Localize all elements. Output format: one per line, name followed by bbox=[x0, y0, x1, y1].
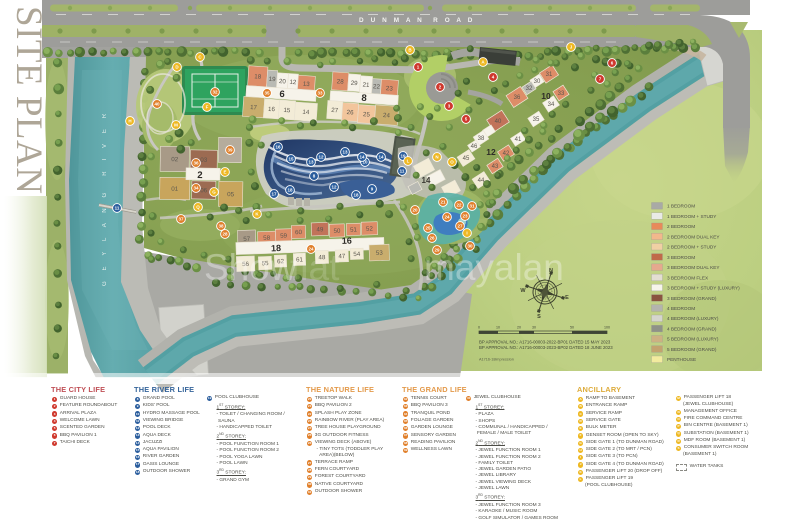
svg-text:5 BEDROOM (GRAND): 5 BEDROOM (GRAND) bbox=[667, 347, 717, 352]
svg-text:2 BEDROOM + STUDY: 2 BEDROOM + STUDY bbox=[667, 245, 717, 250]
svg-text:18: 18 bbox=[353, 193, 359, 198]
svg-text:10: 10 bbox=[496, 326, 500, 330]
svg-text:M: M bbox=[174, 123, 178, 128]
svg-text:32: 32 bbox=[212, 90, 218, 95]
svg-text:12: 12 bbox=[331, 185, 337, 190]
svg-text:3 BEDROOM (GRAND): 3 BEDROOM (GRAND) bbox=[667, 296, 717, 301]
svg-text:32: 32 bbox=[526, 86, 533, 92]
svg-text:mayalan: mayalan bbox=[424, 247, 564, 288]
svg-text:50: 50 bbox=[570, 326, 574, 330]
svg-text:W: W bbox=[520, 288, 526, 294]
svg-text:100: 100 bbox=[604, 326, 610, 330]
svg-text:34: 34 bbox=[548, 102, 555, 108]
svg-text:A1716-18impression: A1716-18impression bbox=[479, 358, 514, 362]
svg-text:BP APPROVAL NO.: A1716-00003-2: BP APPROVAL NO.: A1716-00003-2023-BP02 D… bbox=[479, 345, 613, 350]
svg-text:26: 26 bbox=[346, 109, 354, 117]
svg-text:18: 18 bbox=[254, 73, 262, 81]
svg-text:33: 33 bbox=[558, 91, 565, 97]
svg-text:24: 24 bbox=[444, 215, 450, 220]
svg-text:3 BEDROOM FLEX: 3 BEDROOM FLEX bbox=[667, 275, 709, 280]
svg-text:54: 54 bbox=[353, 251, 361, 258]
svg-text:4 BEDROOM (LUXURY): 4 BEDROOM (LUXURY) bbox=[667, 316, 719, 321]
svg-text:BP APPROVAL NO.: A1716-00003-2: BP APPROVAL NO.: A1716-00003-2022-BP01 D… bbox=[479, 340, 611, 345]
svg-text:17: 17 bbox=[271, 192, 277, 197]
svg-text:49: 49 bbox=[316, 226, 324, 233]
svg-text:27: 27 bbox=[457, 224, 463, 229]
svg-text:0: 0 bbox=[478, 326, 480, 330]
svg-text:22: 22 bbox=[456, 203, 462, 208]
svg-text:01: 01 bbox=[171, 186, 179, 193]
svg-text:21: 21 bbox=[362, 82, 370, 90]
svg-text:45: 45 bbox=[463, 156, 470, 162]
svg-text:4 BEDROOM: 4 BEDROOM bbox=[667, 306, 695, 311]
svg-text:3 BEDROOM: 3 BEDROOM bbox=[667, 255, 695, 260]
svg-text:33: 33 bbox=[317, 91, 323, 96]
svg-text:38: 38 bbox=[478, 136, 485, 142]
svg-text:03: 03 bbox=[200, 157, 208, 164]
svg-text:37: 37 bbox=[178, 217, 184, 222]
svg-text:34: 34 bbox=[193, 186, 199, 191]
svg-text:23: 23 bbox=[462, 214, 468, 219]
svg-text:F: F bbox=[206, 105, 209, 110]
svg-text:G E Y L A N G R I V E R: G E Y L A N G R I V E R bbox=[102, 109, 108, 286]
svg-text:36: 36 bbox=[193, 161, 199, 166]
svg-text:16: 16 bbox=[342, 236, 352, 246]
svg-text:11: 11 bbox=[400, 169, 405, 174]
svg-text:13: 13 bbox=[303, 81, 311, 89]
svg-text:18: 18 bbox=[287, 188, 293, 193]
svg-text:1 BEDROOM: 1 BEDROOM bbox=[667, 204, 695, 209]
svg-text:14: 14 bbox=[302, 109, 310, 117]
svg-text:47: 47 bbox=[338, 253, 346, 260]
svg-text:35: 35 bbox=[533, 117, 540, 123]
svg-text:26: 26 bbox=[429, 236, 435, 241]
svg-text:13: 13 bbox=[308, 160, 314, 165]
svg-text:22: 22 bbox=[373, 83, 381, 91]
svg-text:46: 46 bbox=[471, 144, 478, 150]
svg-text:28: 28 bbox=[222, 232, 228, 237]
svg-text:8: 8 bbox=[361, 93, 367, 104]
svg-text:19: 19 bbox=[268, 76, 276, 84]
svg-text:3 BEDROOM DUAL KEY: 3 BEDROOM DUAL KEY bbox=[667, 265, 720, 270]
svg-text:3 BEDROOM + STUDY (LUXURY): 3 BEDROOM + STUDY (LUXURY) bbox=[667, 286, 740, 291]
svg-text:39: 39 bbox=[227, 148, 233, 153]
svg-text:31: 31 bbox=[469, 204, 475, 209]
svg-text:51: 51 bbox=[350, 227, 358, 234]
svg-text:30: 30 bbox=[532, 326, 536, 330]
svg-text:05: 05 bbox=[227, 191, 235, 198]
svg-text:2 BEDROOM: 2 BEDROOM bbox=[667, 224, 695, 229]
svg-text:14: 14 bbox=[422, 176, 431, 185]
svg-text:28: 28 bbox=[337, 78, 345, 86]
svg-text:24: 24 bbox=[383, 112, 391, 120]
svg-text:2 BEDROOM DUAL KEY: 2 BEDROOM DUAL KEY bbox=[667, 234, 720, 239]
svg-text:59: 59 bbox=[280, 232, 288, 239]
svg-text:41: 41 bbox=[515, 137, 522, 143]
svg-text:23: 23 bbox=[386, 85, 394, 93]
svg-text:31: 31 bbox=[546, 72, 553, 78]
svg-text:40: 40 bbox=[154, 102, 160, 107]
svg-text:Q: Q bbox=[196, 205, 200, 210]
svg-text:21: 21 bbox=[440, 200, 446, 205]
svg-text:16: 16 bbox=[275, 145, 281, 150]
svg-text:11: 11 bbox=[115, 206, 120, 211]
svg-text:36: 36 bbox=[514, 95, 521, 101]
svg-text:14: 14 bbox=[359, 155, 365, 160]
svg-text:I: I bbox=[466, 231, 467, 236]
svg-text:30: 30 bbox=[534, 79, 541, 85]
svg-text:12: 12 bbox=[318, 155, 324, 160]
svg-text:SITE PLAN: SITE PLAN bbox=[8, 6, 49, 194]
svg-text:6: 6 bbox=[279, 89, 285, 100]
svg-text:25: 25 bbox=[363, 111, 371, 119]
svg-text:60: 60 bbox=[295, 229, 303, 236]
svg-text:06: 06 bbox=[200, 187, 208, 194]
svg-text:S: S bbox=[537, 314, 541, 320]
svg-text:H: H bbox=[128, 119, 131, 124]
svg-text:40: 40 bbox=[495, 119, 502, 125]
svg-text:D U N M A N R O A D: D U N M A N R O A D bbox=[359, 17, 475, 24]
svg-text:38: 38 bbox=[218, 224, 224, 229]
svg-text:N: N bbox=[435, 155, 438, 160]
svg-text:O: O bbox=[450, 160, 454, 165]
svg-text:4 BEDROOM (GRAND): 4 BEDROOM (GRAND) bbox=[667, 327, 717, 332]
svg-text:L: L bbox=[407, 159, 410, 164]
svg-text:1 BEDROOM + STUDY: 1 BEDROOM + STUDY bbox=[667, 214, 717, 219]
svg-text:PENTHOUSE: PENTHOUSE bbox=[667, 357, 696, 362]
svg-text:5 BEDROOM (LUXURY): 5 BEDROOM (LUXURY) bbox=[667, 337, 719, 342]
svg-text:E: E bbox=[223, 170, 226, 175]
svg-text:15: 15 bbox=[283, 107, 291, 115]
svg-text:14: 14 bbox=[378, 155, 384, 160]
svg-text:52: 52 bbox=[366, 225, 374, 232]
svg-text:flat: flat bbox=[290, 247, 340, 288]
svg-text:10: 10 bbox=[541, 91, 551, 101]
svg-text:25: 25 bbox=[425, 226, 431, 231]
svg-text:13: 13 bbox=[342, 150, 348, 155]
svg-text:17: 17 bbox=[250, 104, 258, 112]
svg-text:29: 29 bbox=[350, 80, 358, 88]
svg-text:12: 12 bbox=[486, 147, 496, 157]
svg-text:50: 50 bbox=[333, 228, 341, 235]
svg-text:43: 43 bbox=[492, 164, 499, 170]
svg-text:12: 12 bbox=[289, 79, 297, 87]
svg-text:2: 2 bbox=[197, 170, 202, 181]
svg-text:20: 20 bbox=[517, 326, 521, 330]
svg-text:15: 15 bbox=[288, 157, 294, 162]
svg-text:35: 35 bbox=[264, 91, 270, 96]
svg-text:53: 53 bbox=[376, 250, 384, 257]
svg-text:Show: Show bbox=[204, 247, 297, 288]
svg-text:16: 16 bbox=[268, 106, 276, 114]
svg-text:20: 20 bbox=[412, 208, 418, 213]
svg-text:27: 27 bbox=[331, 107, 339, 115]
svg-text:20: 20 bbox=[279, 78, 287, 86]
svg-text:E: E bbox=[565, 295, 569, 301]
svg-text:G: G bbox=[212, 190, 216, 195]
svg-text:02: 02 bbox=[171, 156, 179, 163]
svg-text:58: 58 bbox=[263, 235, 271, 242]
